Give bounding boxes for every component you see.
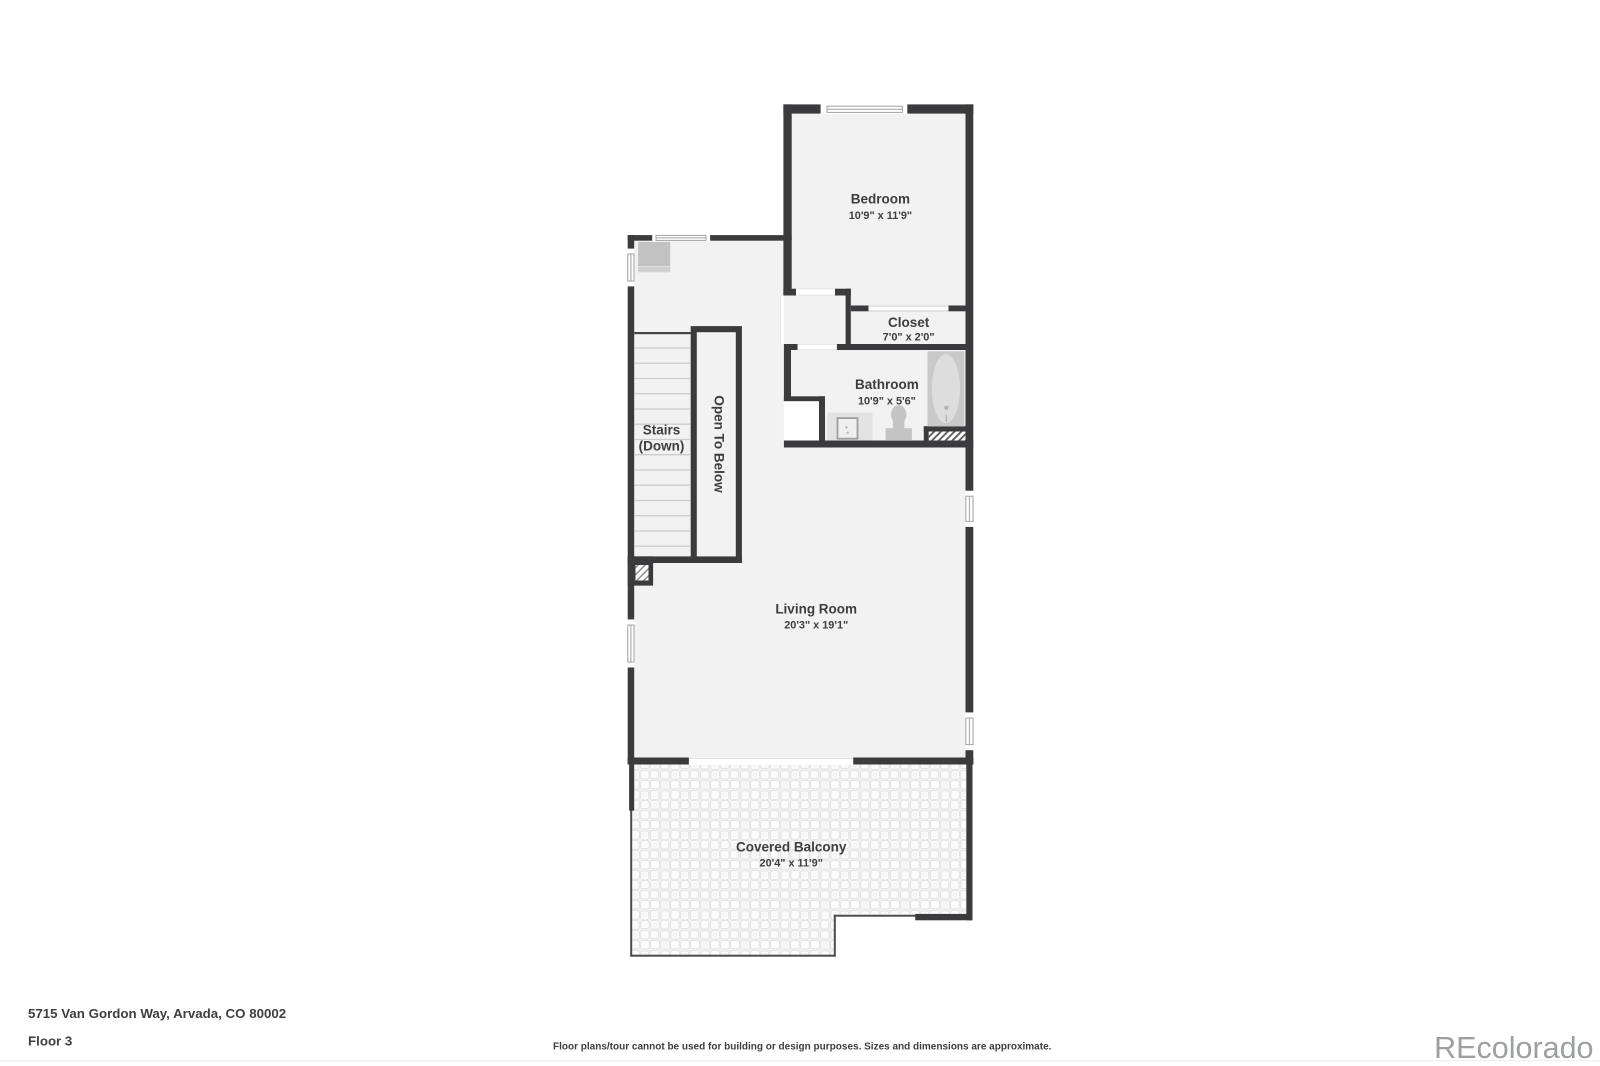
svg-text:5715 Van Gordon Way, Arvada, C: 5715 Van Gordon Way, Arvada, CO 80002 xyxy=(28,1006,286,1021)
svg-text:Bathroom: Bathroom xyxy=(855,377,919,392)
svg-text:Floor 3: Floor 3 xyxy=(28,1034,72,1049)
svg-text:Bedroom: Bedroom xyxy=(851,192,910,207)
svg-text:20'4" x 11'9": 20'4" x 11'9" xyxy=(760,857,823,869)
svg-text:REcolorado: REcolorado xyxy=(1434,1031,1593,1065)
svg-text:Living Room: Living Room xyxy=(775,601,857,616)
svg-text:Closet: Closet xyxy=(888,315,930,330)
svg-text:7'0" x 2'0": 7'0" x 2'0" xyxy=(883,332,935,344)
svg-text:Floor plans/tour cannot be use: Floor plans/tour cannot be used for buil… xyxy=(553,1042,1052,1053)
svg-text:20'3" x 19'1": 20'3" x 19'1" xyxy=(784,620,848,632)
svg-text:10'9" x 11'9": 10'9" x 11'9" xyxy=(849,210,912,222)
svg-text:Open To Below: Open To Below xyxy=(712,395,727,493)
svg-text:Covered Balcony: Covered Balcony xyxy=(736,840,847,855)
svg-text:Stairs: Stairs xyxy=(643,423,681,438)
svg-text:(Down): (Down) xyxy=(639,439,685,454)
svg-text:10'9" x 5'6": 10'9" x 5'6" xyxy=(858,395,916,407)
